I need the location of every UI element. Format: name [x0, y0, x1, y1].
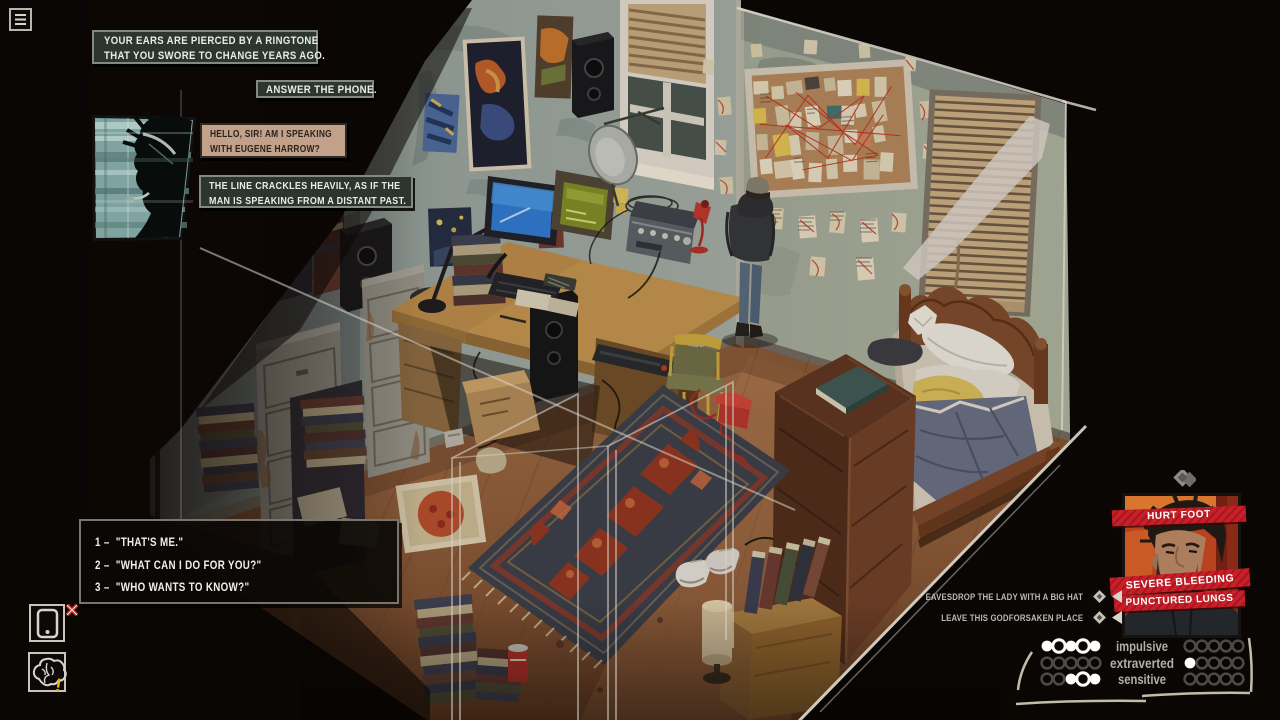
svg-text:sensitive: sensitive: [1118, 672, 1166, 687]
svg-text:impulsive: impulsive: [1116, 639, 1168, 654]
svg-text:extraverted: extraverted: [1110, 656, 1174, 671]
